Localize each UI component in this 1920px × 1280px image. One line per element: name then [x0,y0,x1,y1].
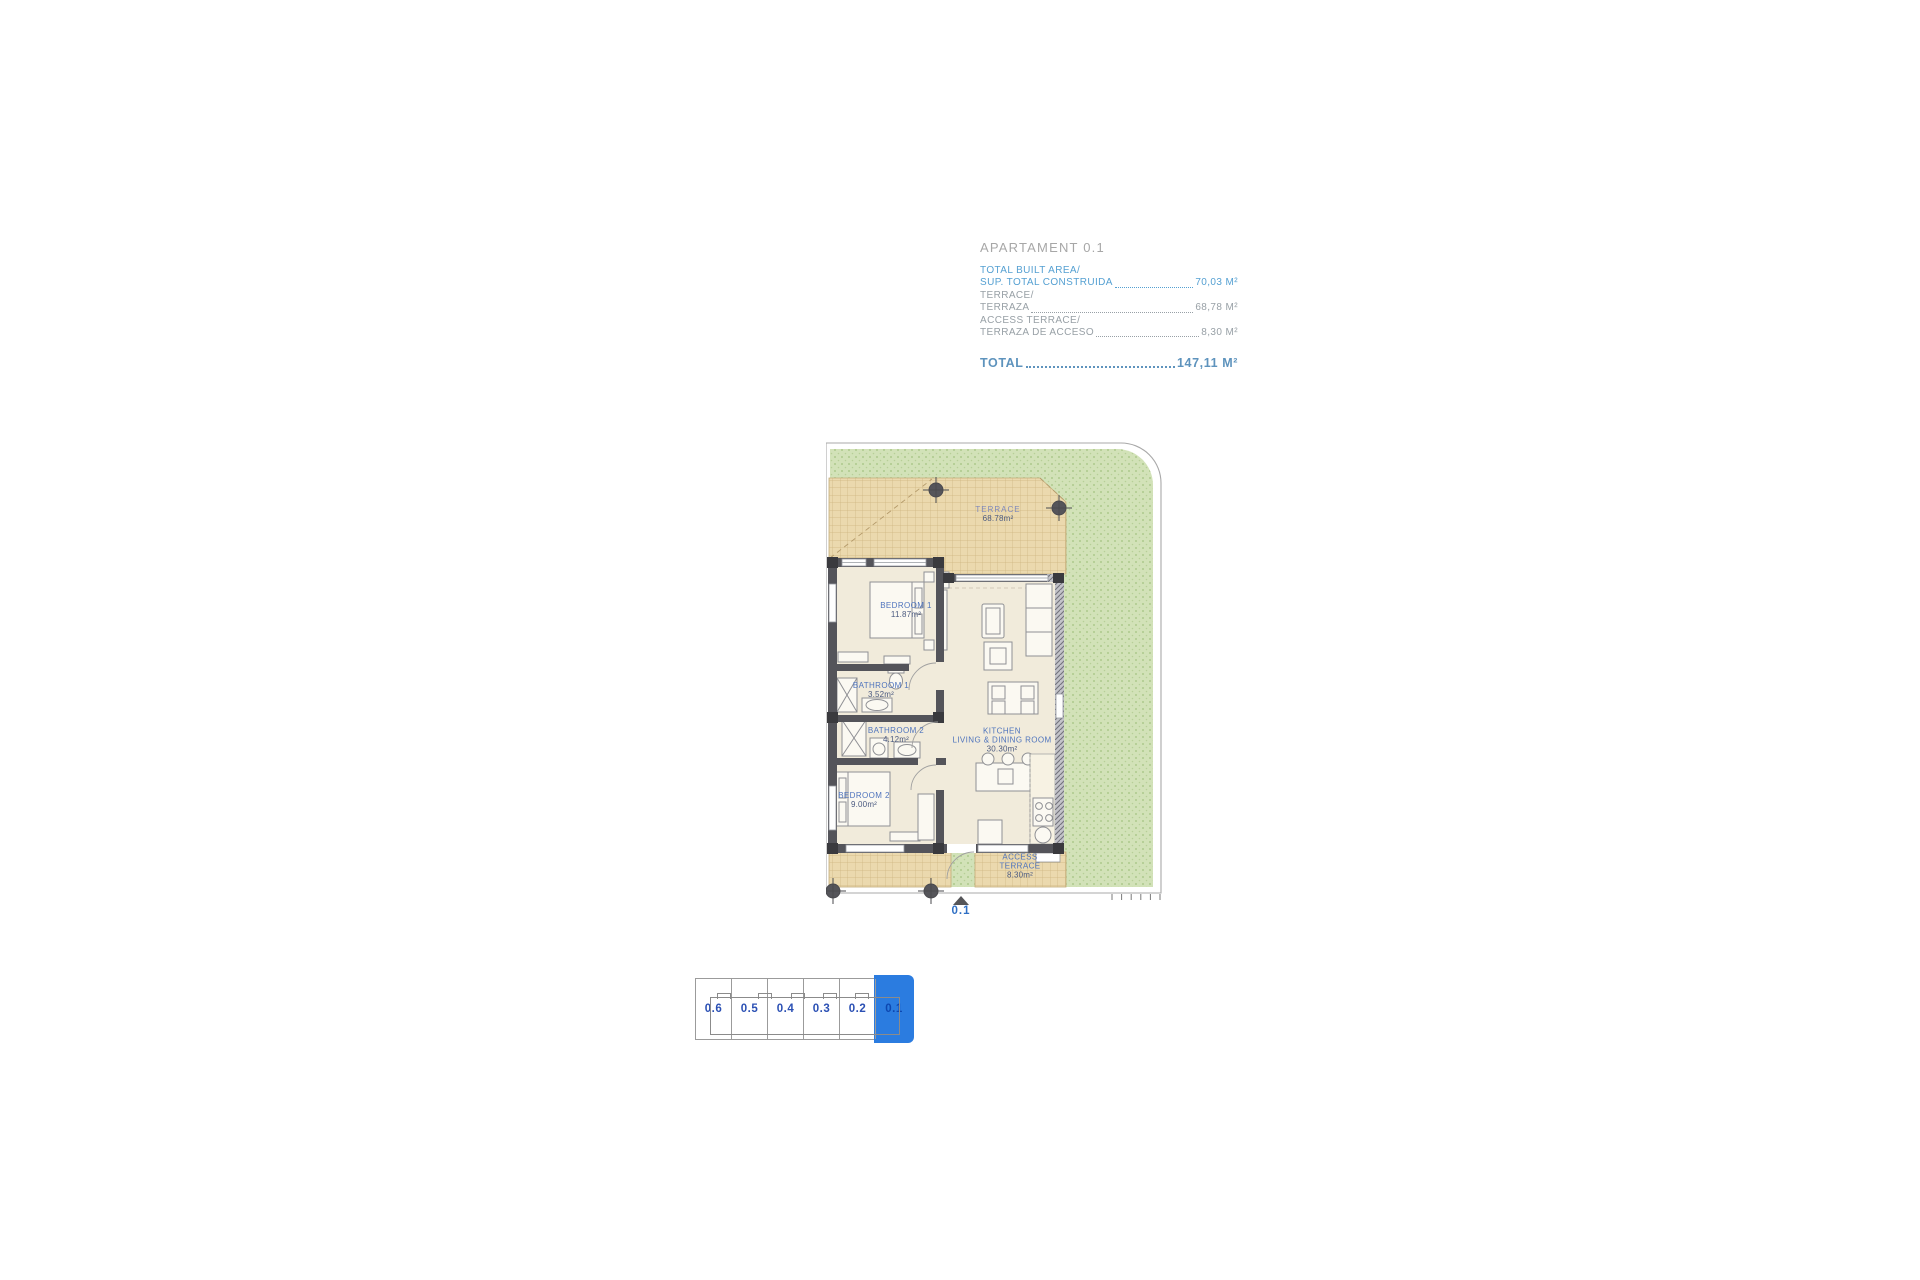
bedroom1-bed-icon [870,572,934,650]
page-title: APARTAMENT 0.1 [980,240,1238,255]
unit-label: 0.5 [741,1003,759,1015]
unit-entrance-label: 0.1 [952,905,971,917]
dining-table-icon [988,682,1038,714]
index-unit-0-1[interactable]: 0.1 [876,979,912,1039]
spec-value: 70,03 M² [1195,277,1238,289]
apartment-spec-block: APARTAMENT 0.1 TOTAL BUILT AREA/ SUP. TO… [980,240,1238,370]
spec-value: 68,78 M² [1195,302,1238,314]
spec-value: 8,30 M² [1201,327,1238,339]
index-unit-0-5[interactable]: 0.5 [732,979,768,1039]
stove-icon [1033,798,1053,826]
unit-label: 0.2 [849,1003,867,1015]
sofa-icon [1026,584,1052,656]
bedroom1-dresser-icon [838,652,868,662]
bedroom2-wardrobe-icon [918,794,934,840]
unit-label: 0.6 [705,1003,723,1015]
index-unit-0-4[interactable]: 0.4 [768,979,804,1039]
floor-plan-drawing [826,440,1166,915]
bedroom2-bed-icon [836,772,890,826]
spec-label: SUP. TOTAL CONSTRUIDA [980,277,1113,289]
fridge-icon [978,820,1002,844]
spec-line: ACCESS TERRACE/ [980,315,1238,327]
index-unit-0-2[interactable]: 0.2 [840,979,876,1039]
dot-leader [1115,287,1193,288]
spec-line: TERRAZA 68,78 M² [980,302,1238,314]
spec-line: TERRAZA DE ACCESO 8,30 M² [980,327,1238,339]
bedroom2-dresser-icon [890,832,920,841]
unit-label: 0.1 [885,1003,903,1015]
unit-index-strip: 0.6 0.5 0.4 0.3 0.2 0.1 [695,978,913,1040]
door-mat [1036,853,1060,862]
index-unit-0-3[interactable]: 0.3 [804,979,840,1039]
total-row: TOTAL 147,11 M² [980,356,1238,370]
coffee-table-icon [984,642,1012,670]
bedroom1-dresser-icon [884,656,910,664]
index-unit-0-6[interactable]: 0.6 [696,979,732,1039]
spec-line: TERRACE/ [980,290,1238,302]
spec-line: SUP. TOTAL CONSTRUIDA 70,03 M² [980,277,1238,289]
total-label: TOTAL [980,356,1024,370]
spec-line: TOTAL BUILT AREA/ [980,265,1238,277]
armchair-icon [982,604,1004,638]
unit-label: 0.3 [813,1003,831,1015]
dot-leader [1096,336,1199,337]
kitchen-island-icon [976,753,1036,791]
kitchen-sink-icon [1035,827,1051,843]
entrance-arrow-icon [953,896,969,905]
dot-leader [1026,366,1175,368]
kitchen-counter-icon [1030,754,1055,844]
spec-label: TERRAZA DE ACCESO [980,327,1094,339]
page-background: APARTAMENT 0.1 TOTAL BUILT AREA/ SUP. TO… [0,0,1920,1280]
scale-ticks [1112,894,1160,900]
total-value: 147,11 M² [1177,356,1238,370]
unit-label: 0.4 [777,1003,795,1015]
access-terrace-area [829,852,1066,887]
dot-leader [1031,312,1193,313]
spec-label: TERRAZA [980,302,1029,314]
